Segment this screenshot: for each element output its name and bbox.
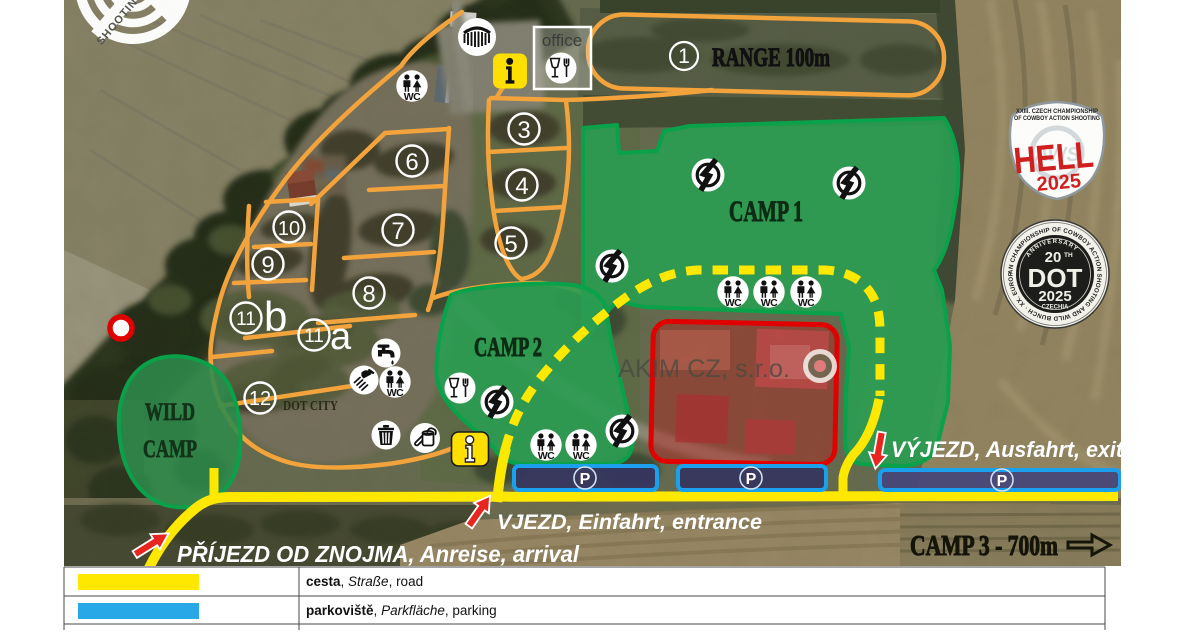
svg-text:CAMP 3 - 700m: CAMP 3 - 700m [910,531,1058,562]
svg-text:CAMP: CAMP [143,436,197,463]
svg-text:8: 8 [362,281,375,308]
svg-text:AKIM CZ, s.r.o.: AKIM CZ, s.r.o. [618,355,790,383]
svg-text:11: 11 [304,326,324,347]
svg-text:office: office [542,31,582,50]
svg-text:cesta, Straße, road: cesta, Straße, road [306,574,423,589]
svg-text:P: P [580,471,591,488]
svg-text:3: 3 [517,117,530,144]
svg-text:2025: 2025 [1036,170,1082,196]
svg-text:DOT CITY: DOT CITY [283,399,338,414]
svg-text:10: 10 [278,218,300,240]
svg-text:parkoviště, Parkfläche, parkin: parkoviště, Parkfläche, parking [306,603,497,618]
svg-text:VÝJEZD, Ausfahrt, exit: VÝJEZD, Ausfahrt, exit [891,437,1125,462]
svg-text:1: 1 [678,45,690,68]
svg-text:XXIII. CZECH CHAMPIONSHIP: XXIII. CZECH CHAMPIONSHIP [1016,109,1098,115]
svg-text:11: 11 [236,309,256,330]
svg-text:OF COWBOY ACTION SHOOTING: OF COWBOY ACTION SHOOTING [1014,116,1100,122]
svg-text:2025: 2025 [1038,288,1071,305]
svg-text:9: 9 [261,252,274,279]
svg-text:CZECHIA: CZECHIA [1042,305,1069,311]
svg-text:P: P [997,473,1008,490]
svg-text:VJEZD, Einfahrt, entrance: VJEZD, Einfahrt, entrance [497,511,762,534]
svg-text:WILD: WILD [145,399,195,426]
svg-text:TH: TH [1064,252,1073,259]
svg-text:RANGE 100m: RANGE 100m [712,43,830,72]
svg-text:P: P [746,471,757,488]
svg-text:4: 4 [515,173,528,200]
svg-text:CAMP 2: CAMP 2 [474,332,542,362]
svg-text:CAMP 1: CAMP 1 [729,195,803,228]
svg-text:6: 6 [405,149,418,176]
svg-text:12: 12 [249,388,271,410]
svg-text:PŘÍJEZD OD ZNOJMA, Anreise, ar: PŘÍJEZD OD ZNOJMA, Anreise, arrival [177,540,580,567]
svg-text:5: 5 [504,231,517,258]
svg-text:7: 7 [391,218,404,245]
svg-text:b: b [264,293,287,340]
svg-text:a: a [330,316,352,358]
